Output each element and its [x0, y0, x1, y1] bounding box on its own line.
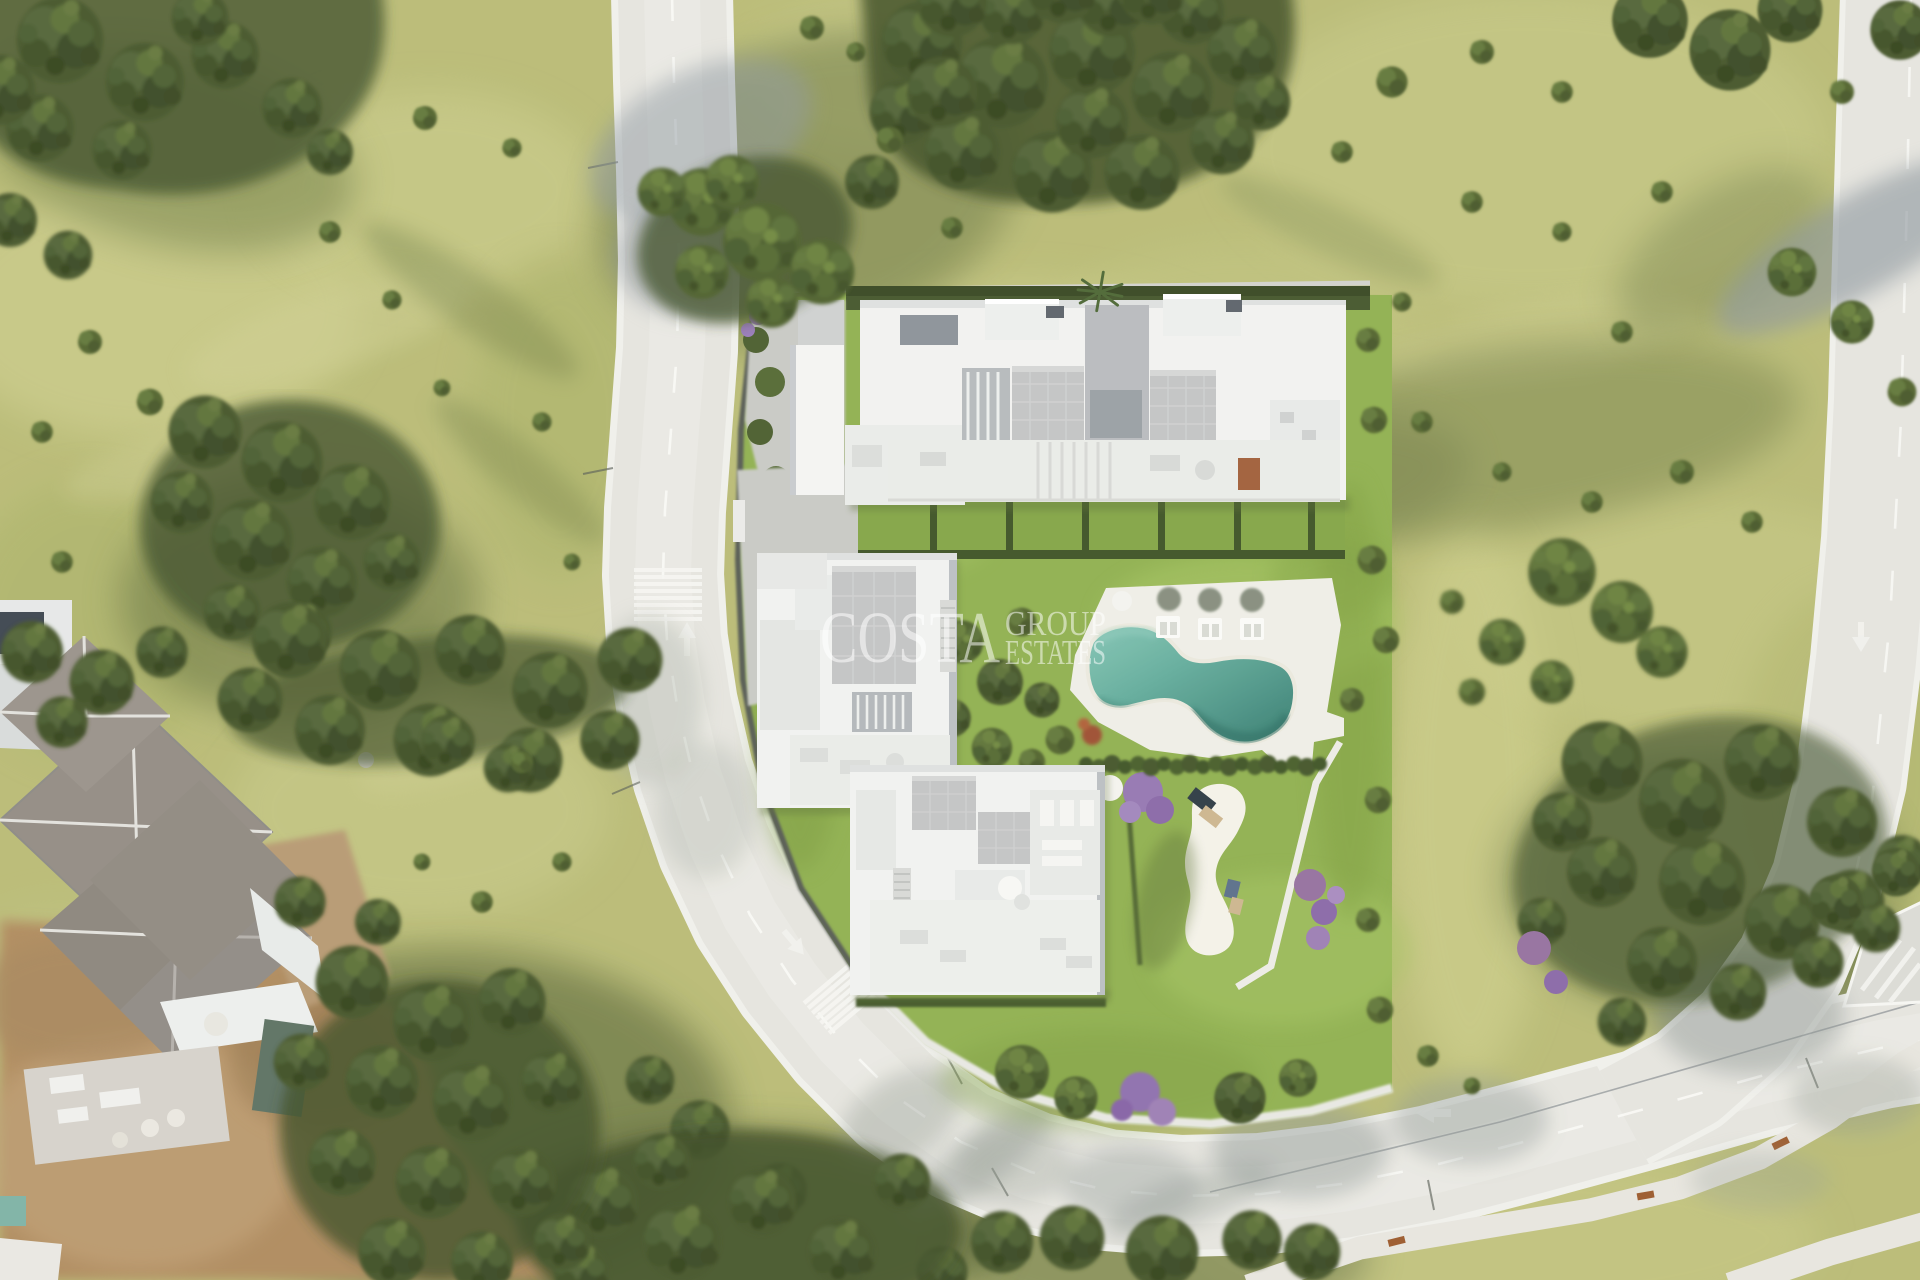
- svg-text:COSTA: COSTA: [820, 597, 1000, 678]
- svg-text:ESTATES: ESTATES: [1005, 633, 1106, 672]
